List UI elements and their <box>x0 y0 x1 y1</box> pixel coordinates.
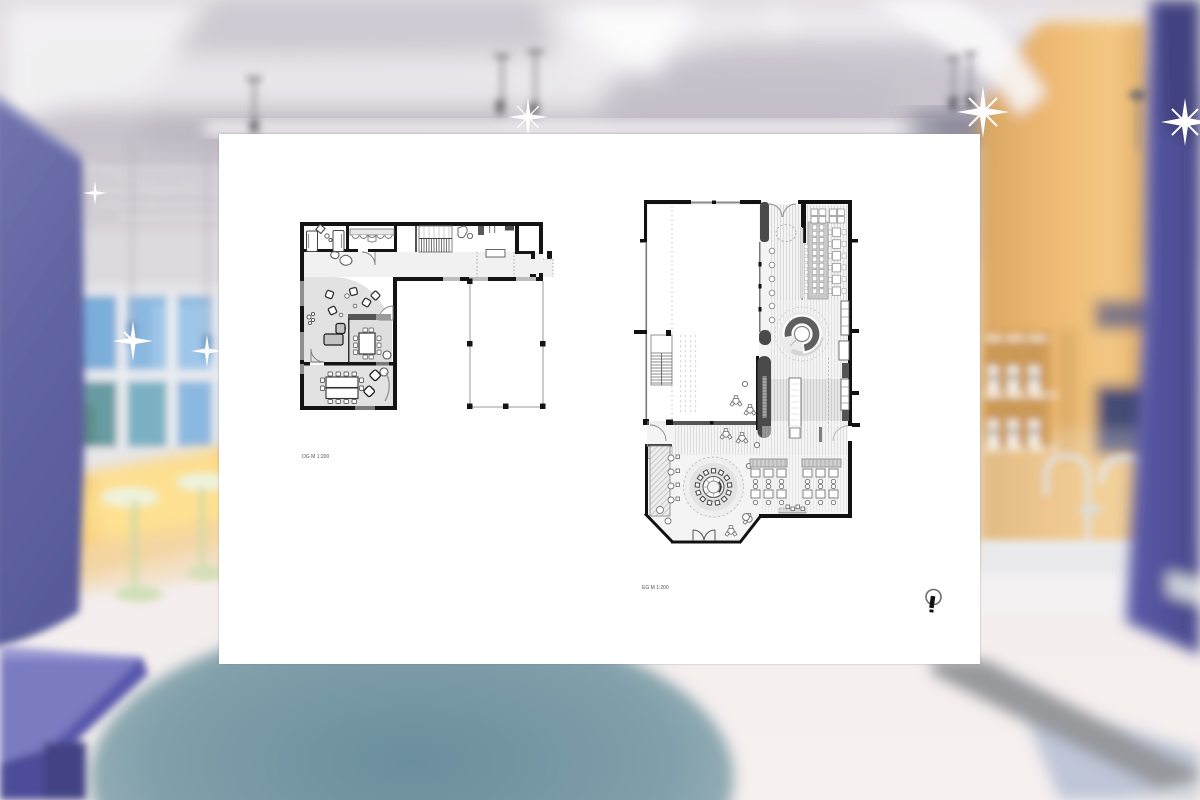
svg-text:OG M 1:200: OG M 1:200 <box>302 454 329 460</box>
svg-text:EG M 1:200: EG M 1:200 <box>642 585 669 591</box>
